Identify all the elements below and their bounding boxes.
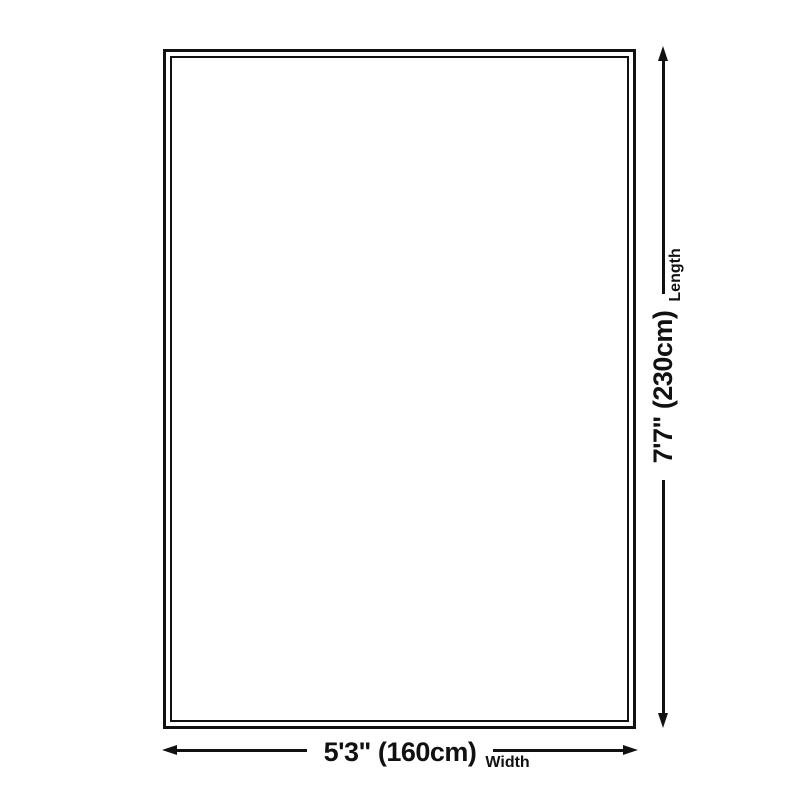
length-dimension-indicator: 7'7" (230cm) Length	[641, 46, 685, 728]
length-dimension-tail: Length	[641, 61, 685, 294]
arrow-down-icon	[658, 713, 668, 728]
width-axis-label: Width	[485, 754, 529, 772]
width-dimension-indicator: 5'3" (160cm) Width	[162, 728, 638, 772]
length-value-label: 7'7" (230cm)	[648, 294, 679, 481]
length-axis-label: Length	[667, 248, 685, 301]
arrow-left-icon	[162, 745, 177, 755]
rug-size-diagram: 5'3" (160cm) Width 7'7" (230cm) Length	[0, 0, 800, 800]
length-dimension-line-lead	[662, 480, 665, 713]
rug-inner-border	[170, 56, 629, 722]
width-value-label: 5'3" (160cm)	[307, 737, 494, 768]
width-dimension-line-lead	[177, 749, 307, 752]
length-dimension-line-tail	[662, 61, 665, 294]
arrow-up-icon	[658, 46, 668, 61]
arrow-right-icon	[623, 745, 638, 755]
width-dimension-line-tail	[493, 749, 623, 752]
rug-outline	[163, 49, 636, 729]
width-dimension-tail: Width	[493, 728, 623, 772]
